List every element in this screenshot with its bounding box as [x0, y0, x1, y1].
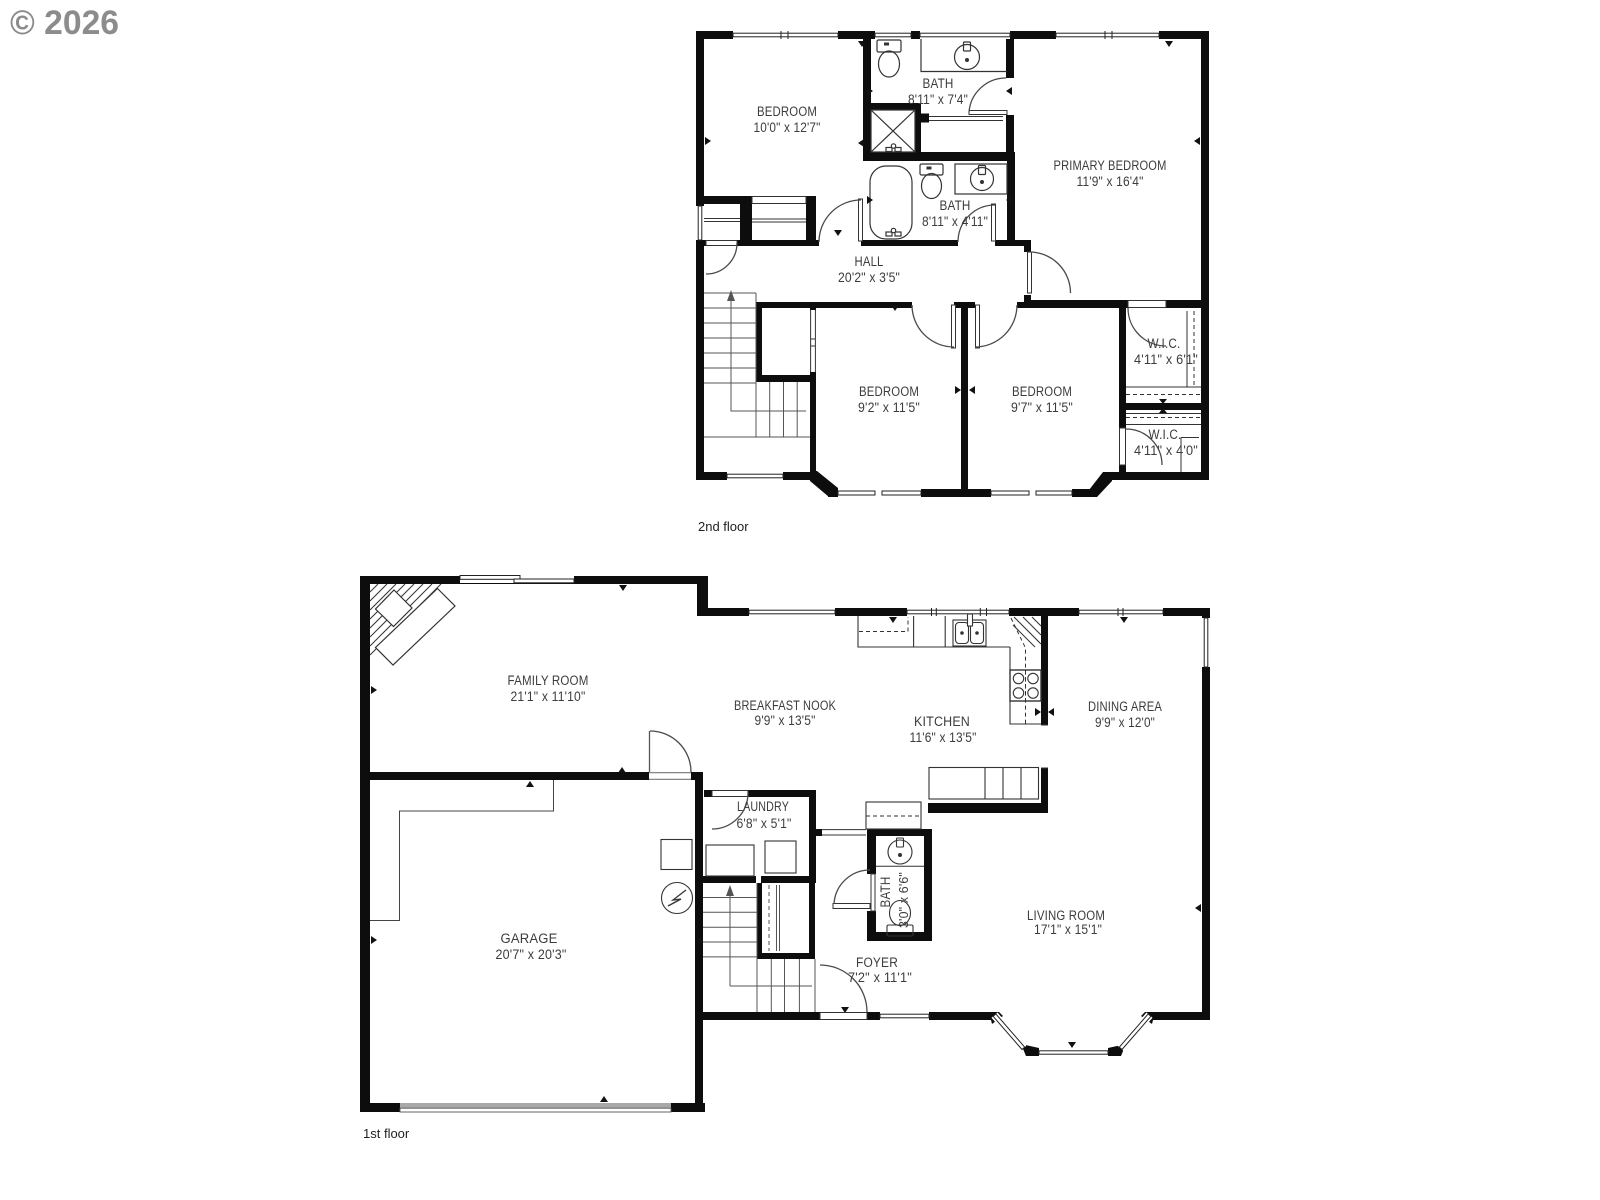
svg-text:BATH: BATH	[878, 877, 893, 908]
svg-text:FOYER: FOYER	[856, 955, 898, 970]
svg-text:PRIMARY BEDROOM: PRIMARY BEDROOM	[1054, 158, 1167, 173]
svg-text:9'9" x 13'5": 9'9" x 13'5"	[755, 713, 816, 728]
svg-text:DINING AREA: DINING AREA	[1088, 699, 1162, 714]
svg-text:20'7" x 20'3": 20'7" x 20'3"	[496, 947, 567, 962]
svg-text:KITCHEN: KITCHEN	[914, 714, 970, 729]
svg-text:6'8" x 5'1": 6'8" x 5'1"	[737, 816, 792, 831]
svg-text:1st floor: 1st floor	[363, 1126, 410, 1141]
svg-text:17'1" x 15'1": 17'1" x 15'1"	[1034, 922, 1102, 937]
svg-text:11'9" x 16'4": 11'9" x 16'4"	[1077, 174, 1144, 189]
svg-text:BEDROOM: BEDROOM	[1012, 384, 1072, 399]
svg-text:4'11" x 6'1": 4'11" x 6'1"	[1134, 352, 1198, 367]
svg-text:4'11" x 4'0": 4'11" x 4'0"	[1134, 443, 1198, 458]
svg-text:11'6" x 13'5": 11'6" x 13'5"	[910, 730, 977, 745]
svg-text:9'7" x 11'5": 9'7" x 11'5"	[1011, 400, 1073, 415]
svg-text:LAUNDRY: LAUNDRY	[737, 799, 789, 814]
svg-text:9'9" x 12'0": 9'9" x 12'0"	[1095, 715, 1155, 730]
svg-text:GARAGE: GARAGE	[501, 931, 558, 946]
svg-text:BEDROOM: BEDROOM	[757, 104, 817, 119]
svg-text:BATH: BATH	[923, 76, 954, 91]
svg-text:21'1" x 11'10": 21'1" x 11'10"	[511, 689, 586, 704]
svg-text:7'2" x 11'1": 7'2" x 11'1"	[848, 970, 912, 985]
svg-text:FAMILY ROOM: FAMILY ROOM	[508, 673, 589, 688]
svg-text:© 2026: © 2026	[10, 4, 119, 42]
svg-text:2nd floor: 2nd floor	[698, 519, 749, 534]
svg-text:BATH: BATH	[940, 198, 971, 213]
svg-text:HALL: HALL	[855, 254, 884, 269]
svg-text:20'2" x 3'5": 20'2" x 3'5"	[838, 270, 900, 285]
svg-text:3'0" x 6'6": 3'0" x 6'6"	[897, 872, 911, 928]
svg-text:BREAKFAST NOOK: BREAKFAST NOOK	[734, 698, 836, 713]
svg-text:LIVING ROOM: LIVING ROOM	[1027, 908, 1105, 923]
svg-text:BEDROOM: BEDROOM	[859, 384, 919, 399]
svg-text:9'2" x 11'5": 9'2" x 11'5"	[858, 400, 920, 415]
svg-text:8'11" x 4'11": 8'11" x 4'11"	[922, 214, 988, 229]
svg-text:8'11" x 7'4": 8'11" x 7'4"	[908, 92, 968, 107]
svg-text:W.I.C.: W.I.C.	[1148, 336, 1181, 351]
svg-text:10'0" x 12'7": 10'0" x 12'7"	[754, 120, 821, 135]
svg-text:W.I.C.: W.I.C.	[1149, 427, 1182, 442]
